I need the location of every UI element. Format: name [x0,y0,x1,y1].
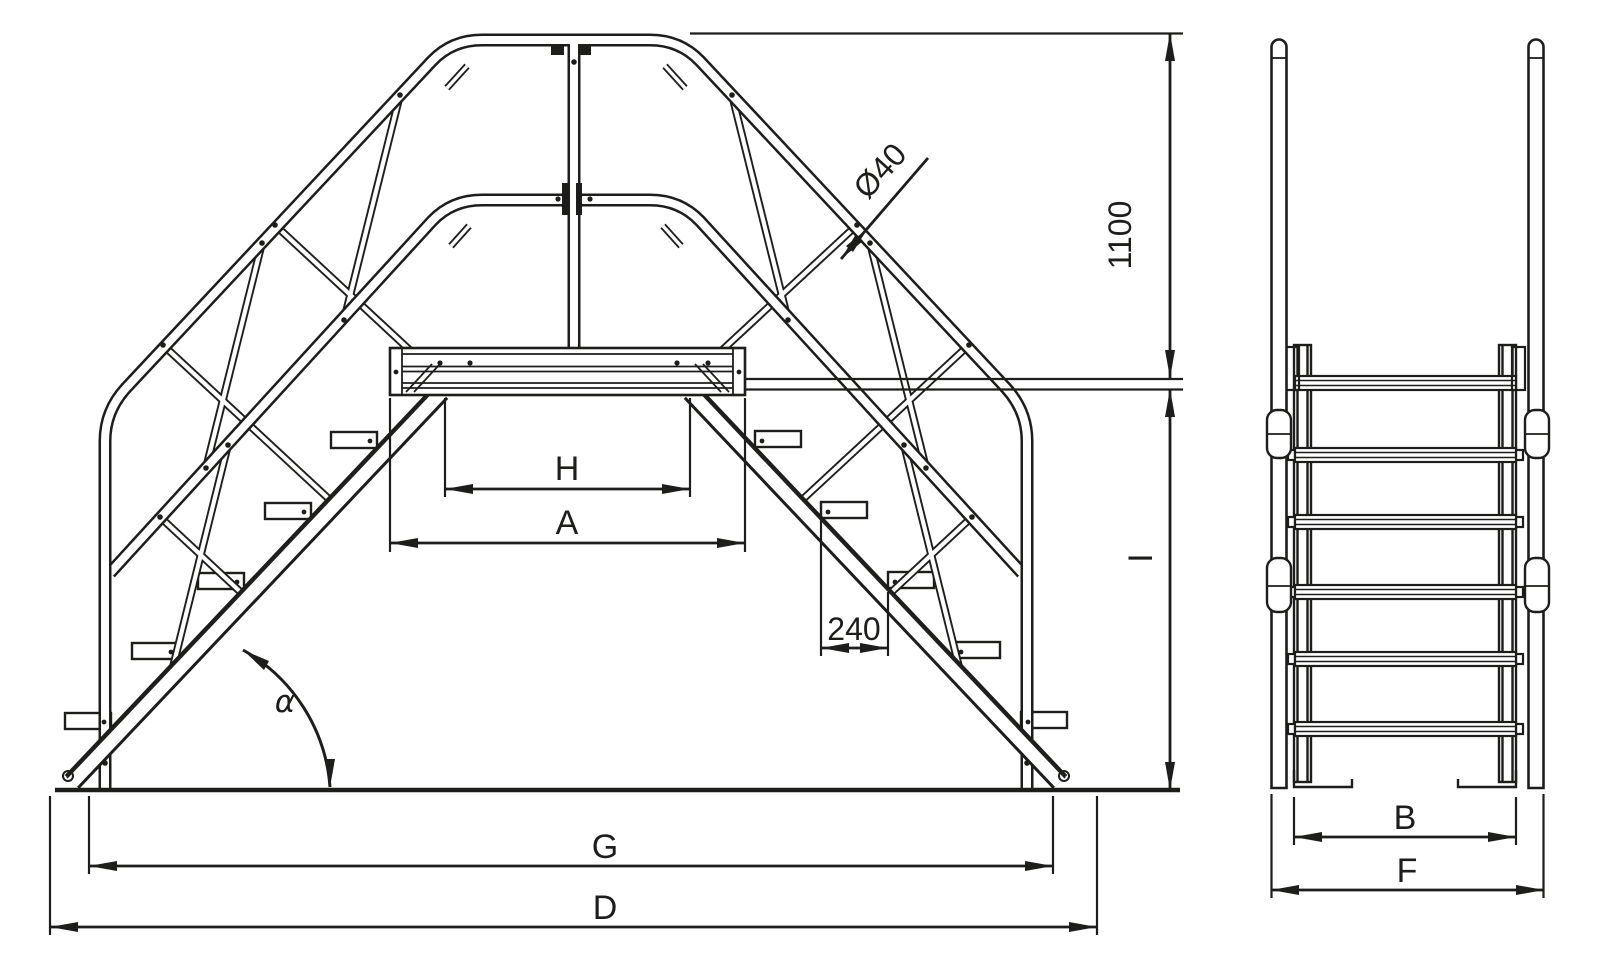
crossover-stairs-drawing: H A 240 α G D 1100 I Ø40 B F [0,0,1600,960]
technical-drawing-page: H A 240 α G D 1100 I Ø40 B F [0,0,1600,960]
platform [390,348,745,395]
dim-label-H: H [555,450,580,488]
left-stringer [67,388,441,782]
post-knee-clamp [562,183,568,215]
side-stringers [1294,345,1516,787]
dim-label-G: G [592,828,618,866]
dim-label-alpha: α [275,684,295,720]
dim-label-D: D [593,889,618,927]
dim-label-1100: 1100 [1102,201,1138,270]
ground-line [55,771,1180,790]
dim-label-240: 240 [827,611,880,647]
right-stringer [691,388,1065,782]
dim-label-I: I [1122,553,1160,562]
dim-label-A: A [556,504,579,542]
side-treads [1286,347,1525,736]
center-post [551,44,591,392]
dim-label-dia40: Ø40 [846,136,913,205]
dim-label-F: F [1397,852,1418,890]
far-rail-stubs [447,66,685,246]
dim-label-B: B [1394,799,1417,837]
post-top-clamp [551,45,564,55]
side-elevation-view [1267,40,1549,789]
front-elevation-view [55,40,1180,792]
tread-bar [1288,376,1523,736]
